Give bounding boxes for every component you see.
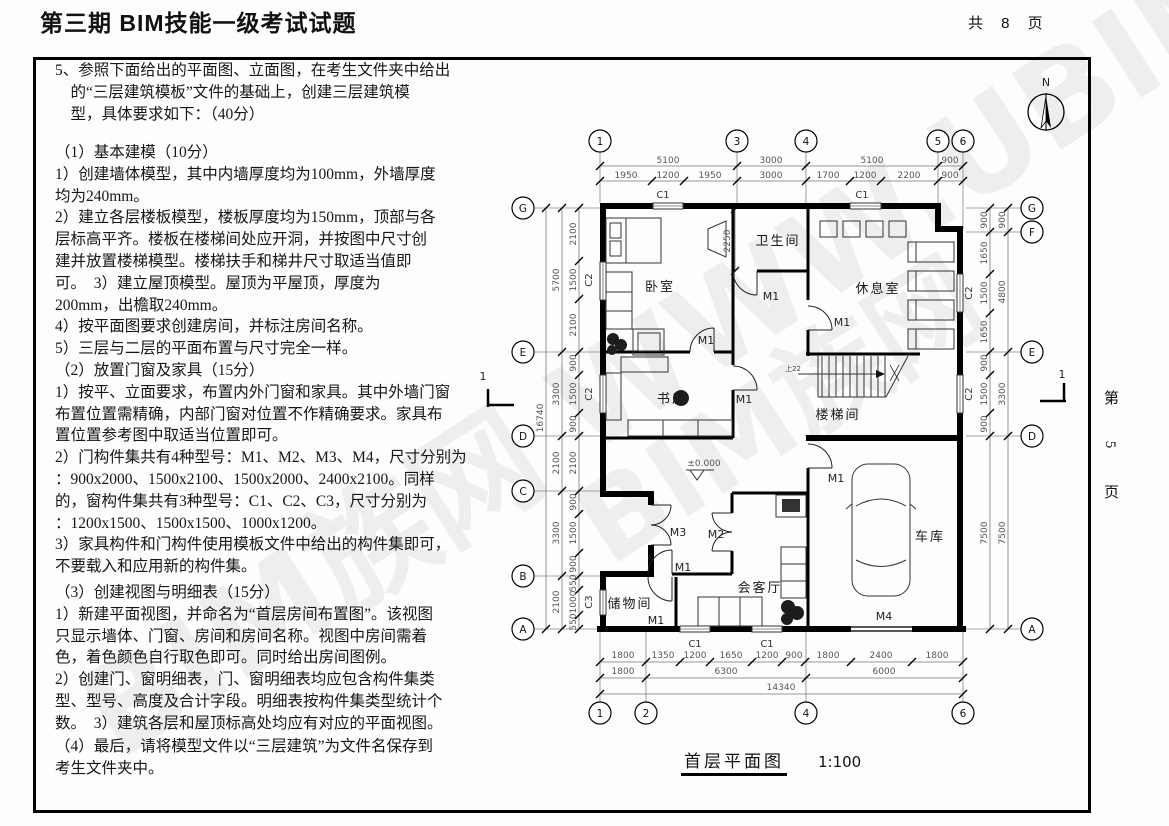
room-label-study: 书房 bbox=[657, 391, 687, 406]
dim-label: 1200 bbox=[684, 651, 707, 661]
dim-label: 4800 bbox=[998, 280, 1008, 303]
dim-label: 6300 bbox=[715, 667, 738, 677]
plan-title: 首层平面图 bbox=[684, 752, 784, 771]
window-label: C1 bbox=[656, 190, 669, 201]
grid-label: G bbox=[519, 203, 527, 215]
grid-label: 5 bbox=[935, 136, 942, 148]
dim-label: 1700 bbox=[817, 171, 840, 181]
elevation-label: ±0.000 bbox=[687, 459, 721, 469]
dim-label: 900 bbox=[785, 651, 802, 661]
dim-label: 1200 bbox=[756, 651, 779, 661]
stair-break-mark bbox=[890, 365, 899, 381]
window-label: C1 bbox=[760, 639, 773, 650]
door-m1-bath bbox=[733, 271, 757, 295]
dim-label: 900 bbox=[980, 211, 990, 228]
dim-label: 1200 bbox=[854, 171, 877, 181]
grid-label: A bbox=[1028, 624, 1036, 636]
living-sofa-vertical bbox=[781, 547, 806, 598]
dim-label: 5100 bbox=[861, 156, 884, 166]
north-arrow-icon: N bbox=[1028, 76, 1064, 131]
dim-label: 1500 bbox=[569, 268, 579, 291]
lounge-chair-4 bbox=[889, 221, 906, 237]
door-m3-entry bbox=[651, 505, 671, 545]
door-m1-garage bbox=[808, 444, 832, 468]
dim-label: 1800 bbox=[612, 667, 635, 677]
dim-label: 2100 bbox=[552, 590, 562, 613]
study-desk bbox=[621, 357, 668, 372]
dim-label: 1200 bbox=[657, 171, 680, 181]
dim-label: 1500 bbox=[980, 382, 990, 405]
door-m1-study bbox=[733, 366, 757, 390]
door-label: M1 bbox=[828, 472, 845, 485]
window-label: C1 bbox=[855, 190, 868, 201]
dim-label: 2100 bbox=[569, 313, 579, 336]
bottom-dimensions: 1800 1350 1200 1650 1200 900 1800 2400 1… bbox=[612, 639, 949, 693]
door-labels: M1 M1 M1 M1 M1 M1 M1 M2 M3 M4 bbox=[648, 290, 893, 627]
left-dimensions: 16740 5700 3300 2100 3300 2100 2100 1500… bbox=[536, 222, 595, 630]
tv-set bbox=[782, 499, 800, 512]
dim-label: 2200 bbox=[898, 171, 921, 181]
living-plant bbox=[781, 600, 804, 625]
dim-label: 1800 bbox=[817, 651, 840, 661]
living-sofa-vertical-cushions bbox=[781, 564, 806, 581]
car-mirrors bbox=[846, 504, 916, 509]
door-label: M1 bbox=[736, 393, 753, 406]
dim-label: 1500 bbox=[569, 521, 579, 544]
floor-plan-drawing: ±0.000 2250 上22 1 1 N 1 3 4 5 6 1 2 4 6 bbox=[0, 0, 1169, 826]
north-label: N bbox=[1042, 76, 1050, 89]
bedroom-armchair-seat bbox=[638, 333, 660, 351]
dim-label: 900 bbox=[980, 415, 990, 432]
dim-label: 7500 bbox=[980, 521, 990, 544]
study-bookshelf-dividers bbox=[663, 420, 698, 436]
dim-label: 2400 bbox=[870, 651, 893, 661]
dim-label: 900 bbox=[941, 171, 958, 181]
window-label: C2 bbox=[964, 286, 975, 299]
dim-label: 1000 bbox=[569, 590, 579, 613]
grid-label: D bbox=[519, 431, 527, 443]
lounge-berth-4 bbox=[908, 329, 954, 349]
dim-label: 16740 bbox=[536, 403, 546, 432]
dim-label: 3300 bbox=[552, 382, 562, 405]
dim-label: 900 bbox=[569, 415, 579, 432]
lounge-chair-1 bbox=[820, 221, 837, 237]
door-label: M1 bbox=[698, 334, 715, 347]
window-label: C3 bbox=[584, 595, 595, 608]
dim-label: 900 bbox=[569, 493, 579, 510]
section-marker-right: 1 bbox=[1040, 368, 1066, 401]
plan-title-block: 首层平面图 1:100 bbox=[681, 752, 861, 776]
car-windshield bbox=[856, 499, 906, 567]
dim-label: 5100 bbox=[657, 156, 680, 166]
dim-label: 3000 bbox=[760, 171, 783, 181]
study-bookshelf bbox=[628, 420, 732, 436]
room-label-living: 会客厅 bbox=[737, 580, 782, 595]
dim-label: 6000 bbox=[873, 667, 896, 677]
grid-label: B bbox=[519, 571, 526, 583]
dim-label: 900 bbox=[998, 211, 1008, 228]
section-marker-left: 1 bbox=[480, 370, 515, 407]
exam-page: { "header": { "title": "第三期 BIM技能一级考试试题"… bbox=[0, 0, 1169, 826]
lounge-berth-2 bbox=[908, 271, 954, 291]
bedroom-sofa-cushions bbox=[606, 292, 632, 311]
right-dimensions: 900 1650 1500 1650 900 1500 900 7500 900… bbox=[964, 211, 1008, 544]
window-label: C2 bbox=[584, 387, 595, 400]
car-body bbox=[852, 464, 910, 596]
dim-label: 1500 bbox=[980, 281, 990, 304]
room-label-bedroom: 卧室 bbox=[645, 279, 675, 294]
dim-label: 1800 bbox=[926, 651, 949, 661]
room-label-storage: 储物间 bbox=[607, 596, 652, 611]
dim-label: 1650 bbox=[980, 241, 990, 264]
dim-label: 550 bbox=[569, 574, 579, 591]
dim-label: 1950 bbox=[699, 171, 722, 181]
door-label: M3 bbox=[670, 526, 687, 539]
room-label-lounge: 休息室 bbox=[855, 281, 900, 296]
grid-label: 4 bbox=[803, 136, 810, 148]
grid-label: 4 bbox=[803, 708, 810, 720]
grid-label: 1 bbox=[597, 708, 604, 720]
grid-label: C bbox=[519, 486, 526, 498]
bedroom-sofa bbox=[606, 272, 632, 329]
room-label-bath: 卫生间 bbox=[755, 233, 800, 248]
doors bbox=[648, 271, 912, 631]
grid-label: A bbox=[519, 624, 527, 636]
grid-label: 1 bbox=[597, 136, 604, 148]
dim-label: 14340 bbox=[767, 683, 796, 693]
lounge-chair-2 bbox=[843, 221, 860, 237]
dim-label: 1350 bbox=[652, 651, 675, 661]
dim-label: 900 bbox=[980, 354, 990, 371]
room-label-stair: 楼梯间 bbox=[815, 407, 860, 422]
elevation-marker bbox=[686, 470, 714, 480]
door-label: M1 bbox=[648, 614, 665, 627]
dim-label: 900 bbox=[941, 156, 958, 166]
dim-label: 2100 bbox=[569, 451, 579, 474]
grid-label: E bbox=[1029, 347, 1036, 359]
lounge-berth-3 bbox=[908, 300, 954, 320]
door-label: M1 bbox=[675, 561, 692, 574]
door-label: M1 bbox=[834, 316, 851, 329]
dim-label: 2100 bbox=[569, 222, 579, 245]
dim-label: 1500 bbox=[569, 382, 579, 405]
door-label: M2 bbox=[708, 528, 725, 541]
study-side-desk bbox=[606, 373, 621, 420]
dim-label: 3300 bbox=[552, 521, 562, 544]
door-label: M4 bbox=[876, 610, 893, 623]
plan-scale: 1:100 bbox=[818, 753, 861, 771]
stair-note: 上22 bbox=[785, 364, 801, 373]
dim-label: 5700 bbox=[552, 268, 562, 291]
grid-label: 3 bbox=[734, 136, 741, 148]
dim-label: 1650 bbox=[980, 320, 990, 343]
stair-arrow-head bbox=[876, 370, 885, 378]
section-mark-label: 1 bbox=[1059, 368, 1066, 381]
section-mark-label: 1 bbox=[480, 370, 487, 383]
door-m4-garage-opening bbox=[851, 627, 912, 631]
grid-label: 6 bbox=[960, 708, 967, 720]
dim-label: 1650 bbox=[720, 651, 743, 661]
living-sofa-bottom bbox=[698, 597, 762, 626]
dim-label: 1950 bbox=[615, 171, 638, 181]
grid-label: 6 bbox=[960, 136, 967, 148]
grid-label: E bbox=[520, 347, 527, 359]
living-sofa-bottom-cushions bbox=[719, 597, 740, 626]
window-label: C2 bbox=[964, 387, 975, 400]
stairs bbox=[798, 354, 908, 397]
dim-label: 2100 bbox=[552, 451, 562, 474]
lounge-chair-3 bbox=[866, 221, 883, 237]
door-label: M1 bbox=[763, 290, 780, 303]
dim-label: 7500 bbox=[998, 521, 1008, 544]
dim-label: 1800 bbox=[612, 651, 635, 661]
stair-treads bbox=[818, 354, 908, 397]
dim-label: 900 bbox=[569, 555, 579, 572]
window-label: C2 bbox=[584, 273, 595, 286]
top-dimensions: 5100 3000 5100 900 1950 1200 1950 3000 1… bbox=[615, 156, 959, 201]
lounge-berth-1 bbox=[908, 242, 954, 262]
dim-label: 550 bbox=[569, 613, 579, 630]
dim-label: 900 bbox=[569, 354, 579, 371]
bed-pillow-1 bbox=[610, 223, 621, 238]
grid-label: D bbox=[1028, 431, 1036, 443]
grid-label: G bbox=[1028, 203, 1036, 215]
dim-label: 3300 bbox=[998, 382, 1008, 405]
room-label-garage: 车库 bbox=[915, 529, 945, 544]
grid-label: F bbox=[1029, 227, 1035, 239]
door-m1-lounge bbox=[808, 306, 832, 330]
bed-pillow-2 bbox=[610, 241, 621, 256]
grid-label: 2 bbox=[643, 708, 650, 720]
plan-title-underline bbox=[681, 773, 787, 776]
dim-label-bath: 2250 bbox=[723, 229, 733, 252]
dim-label: 3000 bbox=[760, 156, 783, 166]
window-label: C1 bbox=[688, 639, 701, 650]
